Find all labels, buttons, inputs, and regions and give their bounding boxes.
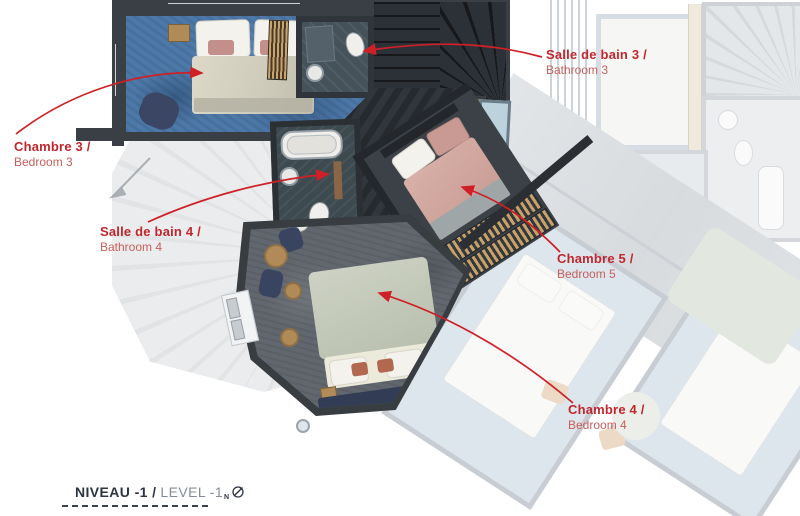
bathroom3-room xyxy=(296,16,374,98)
annotation-bedroom-3: Chambre 3 / Bedroom 3 xyxy=(14,139,91,170)
nightstand-icon xyxy=(168,24,190,42)
north-letter: N xyxy=(224,494,229,501)
stool-icon xyxy=(264,244,288,268)
annotation-text-en: Bathroom 3 xyxy=(546,63,647,78)
annotation-bedroom-4: Chambre 4 / Bedroom 4 xyxy=(568,402,645,433)
annotation-text-en: Bedroom 3 xyxy=(14,155,91,170)
cushion-icon xyxy=(257,268,284,299)
annotation-text-en: Bedroom 5 xyxy=(557,267,634,282)
annotation-bathroom-3: Salle de bain 3 / Bathroom 3 xyxy=(546,47,647,78)
shower-tray-icon xyxy=(305,25,335,63)
stool-icon xyxy=(284,282,302,300)
stool-icon xyxy=(280,328,299,347)
annotation-text-en: Bedroom 4 xyxy=(568,418,645,433)
annotation-text-en: Bathroom 4 xyxy=(100,240,201,255)
level-title: NIVEAU -1 / LEVEL -1 N xyxy=(75,483,245,500)
floor-plan-page: Chambre 3 / Bedroom 3 Salle de bain 3 / … xyxy=(0,0,800,516)
annotation-text-fr: Chambre 5 / xyxy=(557,251,634,267)
level-title-en: LEVEL -1 xyxy=(160,484,223,500)
level-title-fr: NIVEAU -1 / xyxy=(75,484,156,500)
window-bay xyxy=(596,14,694,150)
fringe-partition xyxy=(267,20,289,81)
toilet-icon xyxy=(734,140,753,166)
dashed-underline xyxy=(62,505,208,507)
sink-icon xyxy=(718,110,738,130)
shelf-icon xyxy=(333,161,342,199)
stairs-adjacent xyxy=(702,2,800,102)
annotation-text-fr: Salle de bain 3 / xyxy=(546,47,647,63)
annotation-text-fr: Salle de bain 4 / xyxy=(100,224,201,240)
bathtub-icon xyxy=(280,129,343,160)
vent-circle xyxy=(296,419,310,433)
sink-icon xyxy=(306,64,324,82)
annotation-text-fr: Chambre 4 / xyxy=(568,402,645,418)
annotation-bedroom-5: Chambre 5 / Bedroom 5 xyxy=(557,251,634,282)
annotation-bathroom-4: Salle de bain 4 / Bathroom 4 xyxy=(100,224,201,255)
compass-icon xyxy=(231,485,245,499)
annotation-text-fr: Chambre 3 / xyxy=(14,139,91,155)
bathtub-icon xyxy=(758,166,784,230)
